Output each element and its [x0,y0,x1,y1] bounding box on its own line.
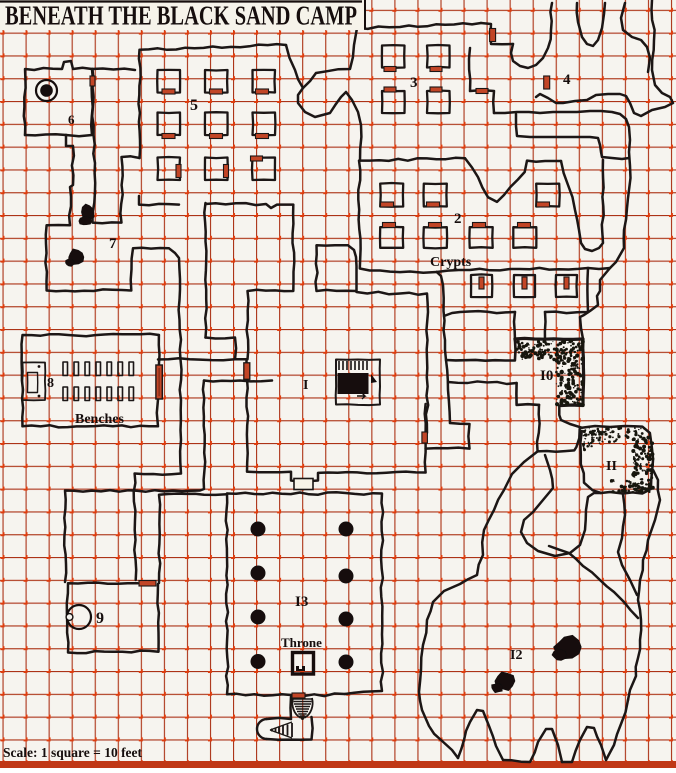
svg-text:9: 9 [96,610,104,627]
svg-text:II: II [606,459,617,474]
svg-text:I0: I0 [540,368,553,384]
svg-text:I3: I3 [295,594,308,610]
svg-text:3: 3 [410,75,418,91]
svg-text:7: 7 [109,236,117,252]
svg-text:8: 8 [47,376,54,391]
svg-text:4: 4 [563,72,571,88]
svg-text:Benches: Benches [75,412,125,427]
svg-text:5: 5 [190,97,198,114]
svg-text:Scale: 1 square = 10 feet: Scale: 1 square = 10 feet [3,745,143,760]
svg-text:2: 2 [454,211,462,227]
svg-text:I2: I2 [510,648,522,663]
svg-text:Throne: Throne [281,635,322,650]
svg-text:6: 6 [68,112,75,127]
svg-text:BENEATH THE BLACK SAND CAMP: BENEATH THE BLACK SAND CAMP [5,1,357,31]
svg-text:Crypts: Crypts [430,255,472,270]
svg-text:I: I [303,378,308,393]
